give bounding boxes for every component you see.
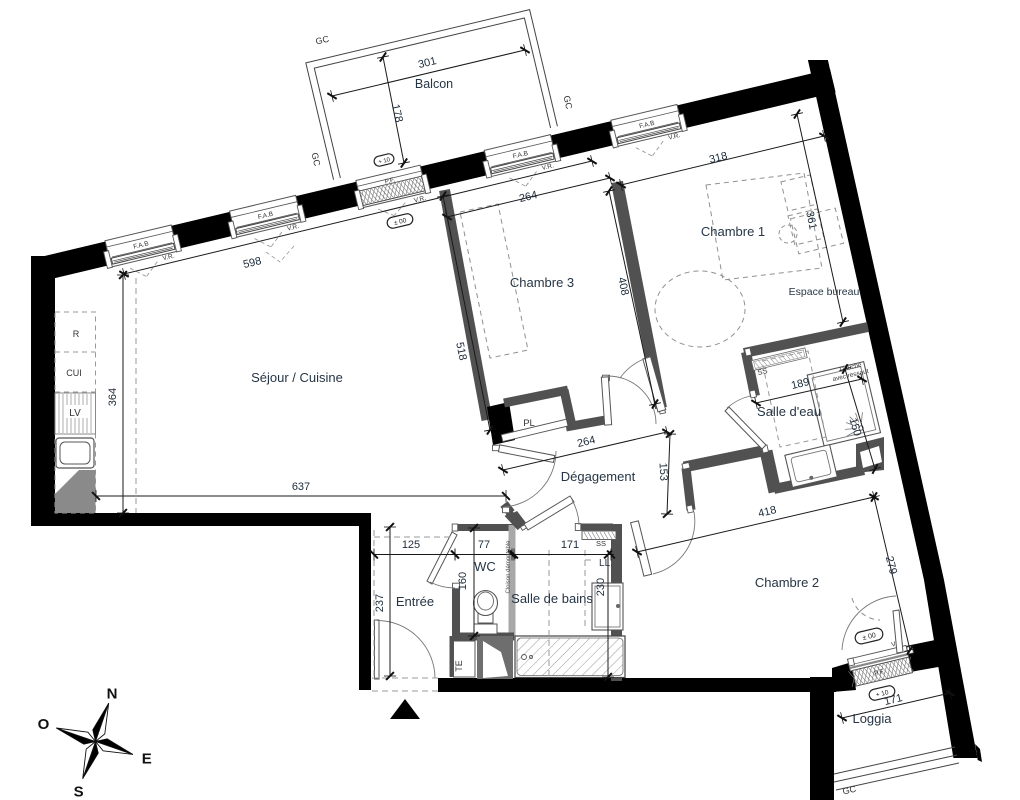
svg-text:Salle de bains: Salle de bains: [511, 591, 593, 606]
svg-text:TE: TE: [454, 660, 464, 672]
svg-text:O: O: [38, 716, 50, 733]
svg-text:230: 230: [595, 578, 607, 596]
svg-text:R: R: [73, 329, 80, 339]
svg-text:PL: PL: [523, 418, 535, 429]
svg-text:Salle d'eau: Salle d'eau: [757, 404, 821, 419]
svg-text:S: S: [74, 784, 84, 800]
svg-text:N: N: [107, 685, 118, 702]
svg-text:Chambre 1: Chambre 1: [701, 224, 765, 239]
svg-text:364: 364: [107, 388, 119, 406]
svg-text:160: 160: [457, 572, 469, 590]
svg-text:Chambre 3: Chambre 3: [510, 275, 574, 290]
svg-text:Dégagement: Dégagement: [561, 469, 636, 484]
svg-text:CUI: CUI: [66, 368, 82, 378]
svg-text:125: 125: [402, 539, 420, 551]
svg-text:Séjour / Cuisine: Séjour / Cuisine: [251, 370, 343, 385]
svg-text:Chambre 2: Chambre 2: [755, 575, 819, 590]
svg-text:237: 237: [374, 594, 386, 612]
svg-text:SS: SS: [596, 539, 606, 548]
svg-text:WC: WC: [474, 559, 496, 574]
svg-text:171: 171: [561, 539, 579, 551]
svg-text:637: 637: [292, 481, 310, 493]
svg-text:Cloison démontable: Cloison démontable: [506, 540, 512, 594]
svg-text:LV: LV: [69, 408, 81, 419]
svg-text:153: 153: [657, 462, 670, 481]
svg-text:Loggia: Loggia: [852, 711, 892, 726]
svg-text:Balcon: Balcon: [415, 77, 453, 91]
svg-text:Espace bureau: Espace bureau: [789, 286, 860, 298]
svg-text:77: 77: [478, 539, 490, 551]
svg-text:E: E: [142, 750, 152, 767]
svg-text:Entrée: Entrée: [396, 594, 434, 609]
